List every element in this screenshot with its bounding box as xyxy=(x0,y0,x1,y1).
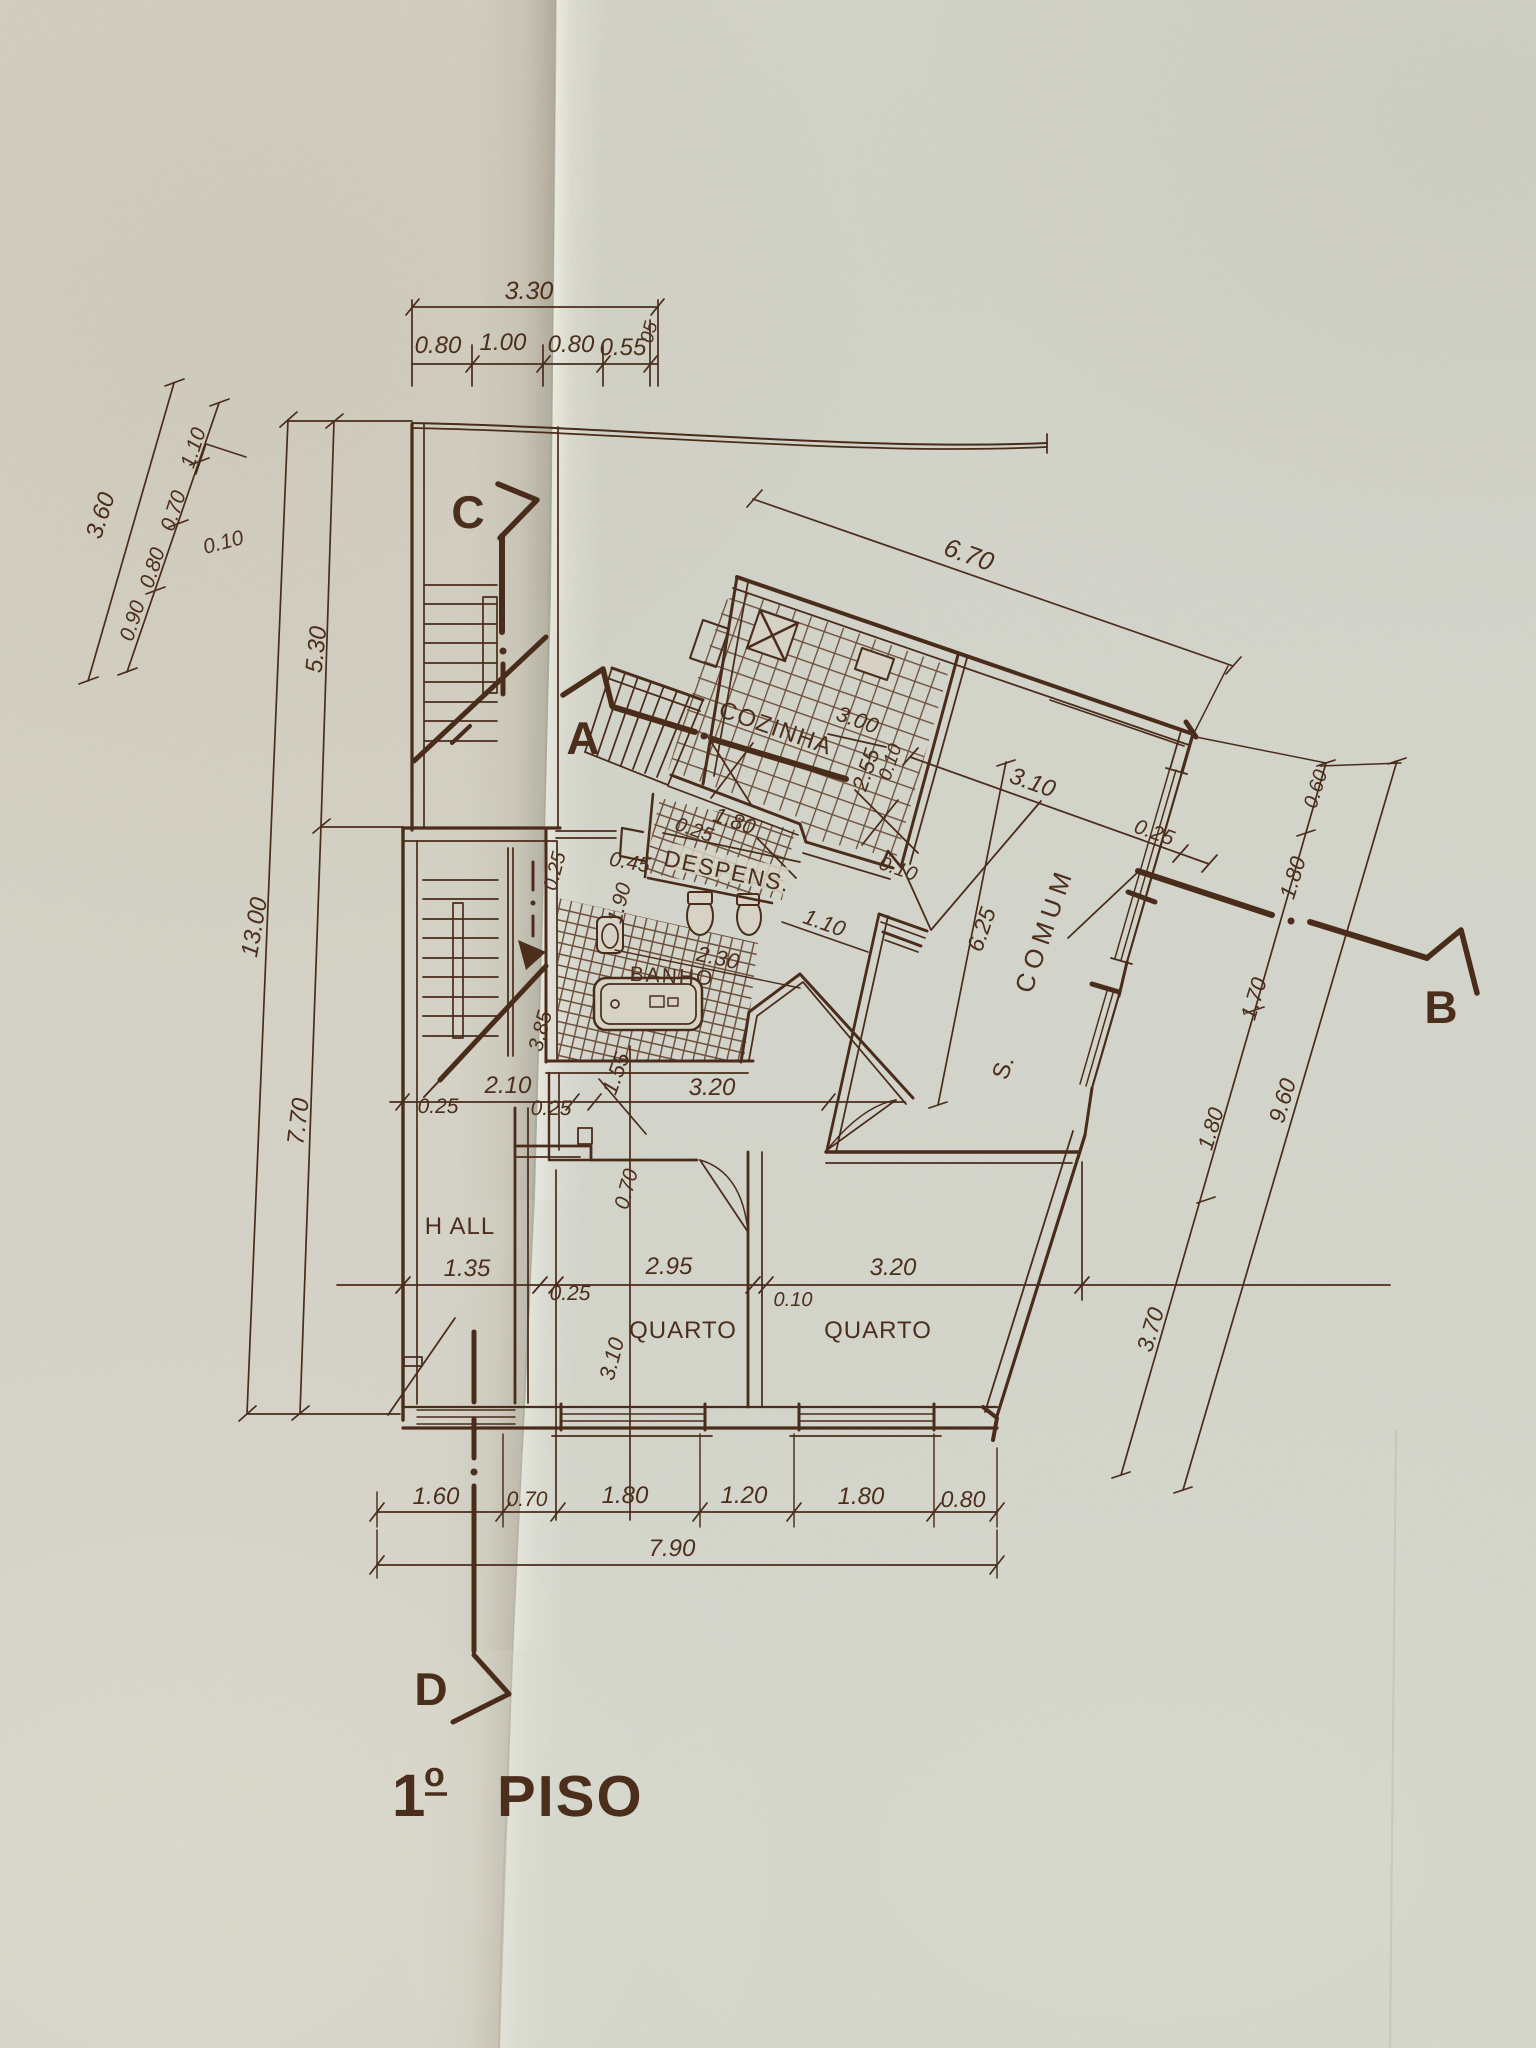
svg-text:7.90: 7.90 xyxy=(649,1535,696,1562)
svg-text:D: D xyxy=(414,1663,447,1715)
svg-text:B: B xyxy=(1424,981,1457,1033)
svg-text:0.10: 0.10 xyxy=(774,1289,813,1311)
svg-text:H ALL: H ALL xyxy=(425,1213,495,1240)
svg-text:2.10: 2.10 xyxy=(484,1072,532,1099)
svg-text:7.70: 7.70 xyxy=(282,1096,315,1146)
svg-text:0.80: 0.80 xyxy=(415,332,462,359)
svg-text:0.25: 0.25 xyxy=(418,1095,459,1118)
svg-text:1.80: 1.80 xyxy=(602,1482,649,1509)
svg-text:5.30: 5.30 xyxy=(301,624,333,674)
svg-text:QUARTO: QUARTO xyxy=(824,1317,932,1344)
svg-text:1.00: 1.00 xyxy=(480,329,527,356)
svg-text:0.80: 0.80 xyxy=(941,1486,986,1512)
svg-text:0.80: 0.80 xyxy=(548,331,595,358)
svg-text:1.20: 1.20 xyxy=(721,1482,768,1509)
svg-text:2.95: 2.95 xyxy=(645,1253,693,1280)
svg-text:3.30: 3.30 xyxy=(505,277,554,305)
svg-text:0.70: 0.70 xyxy=(507,1488,548,1511)
svg-text:0.25: 0.25 xyxy=(550,1282,591,1305)
svg-text:A: A xyxy=(566,712,599,764)
svg-text:o: o xyxy=(424,1756,445,1794)
svg-text:C: C xyxy=(451,486,484,538)
svg-text:3.20: 3.20 xyxy=(870,1254,917,1281)
svg-text:1: 1 xyxy=(392,1762,425,1829)
svg-text:3.20: 3.20 xyxy=(689,1074,736,1101)
svg-text:QUARTO: QUARTO xyxy=(629,1317,737,1344)
svg-text:PISO: PISO xyxy=(497,1764,644,1829)
svg-text:1.80: 1.80 xyxy=(838,1483,885,1510)
svg-text:1.35: 1.35 xyxy=(444,1255,491,1282)
svg-text:1.60: 1.60 xyxy=(413,1483,460,1510)
svg-text:0.25: 0.25 xyxy=(531,1097,572,1120)
